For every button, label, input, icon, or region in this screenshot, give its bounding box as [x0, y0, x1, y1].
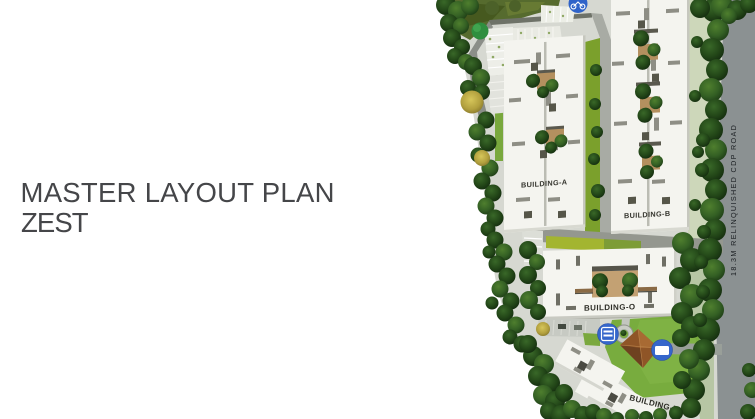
svg-text:ZEST: ZEST — [21, 207, 89, 238]
svg-text:18.3M RELINQUISHED CDP ROAD: 18.3M RELINQUISHED CDP ROAD — [729, 124, 738, 276]
svg-text:MASTER LAYOUT PLAN: MASTER LAYOUT PLAN — [21, 177, 335, 208]
svg-text:BUILDING-O: BUILDING-O — [584, 302, 636, 312]
